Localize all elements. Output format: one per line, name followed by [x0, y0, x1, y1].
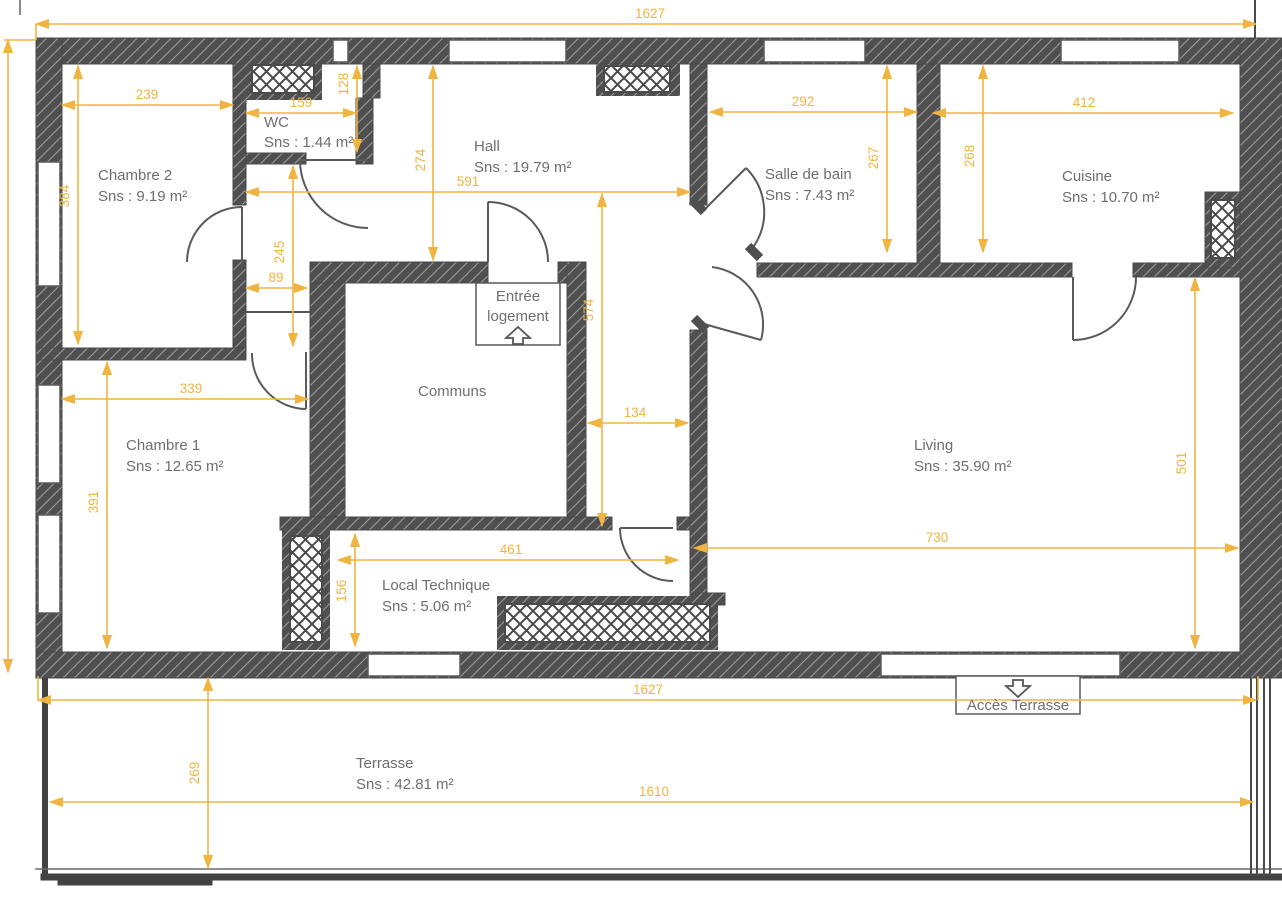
shaft-local-tech-duct: [290, 536, 322, 642]
door-salle-de-bain: [702, 168, 764, 246]
shaft-hall-duct: [604, 66, 670, 92]
window-top-3: [764, 40, 865, 62]
window-top-2: [449, 40, 566, 62]
dim-label-chambre1-height: 391: [86, 491, 101, 514]
door-jamb-3: [694, 318, 706, 330]
dim-label-terrace-depth: 269: [187, 762, 202, 785]
window-bottom-1: [368, 654, 460, 676]
floor-plan-canvas: 1627 239 159 128 274 591 574 292 267 268…: [0, 0, 1282, 900]
dim-label-top-total: 1627: [635, 6, 665, 21]
room-area-salle-de-bain: Sns : 7.43 m²: [765, 187, 854, 204]
room-label-chambre1: Chambre 1: [126, 437, 200, 454]
dim-label-corridor-width: 134: [624, 405, 647, 420]
door-jamb-2: [748, 246, 760, 258]
dim-label-hall-width: 591: [457, 174, 480, 189]
dim-label-local-height: 156: [334, 580, 349, 603]
entree-label-line2: logement: [487, 308, 550, 325]
dim-label-bottom-total: 1627: [633, 682, 663, 697]
wall-wc-east: [356, 98, 373, 164]
door-chambre2: [187, 207, 242, 262]
wall-corridor-east-lower: [690, 330, 707, 605]
wall-wc-south: [246, 153, 306, 164]
shafts: [244, 58, 1235, 650]
wall-living-north-west: [757, 263, 1072, 277]
dim-label-niche: 89: [268, 270, 283, 285]
door-local-technique: [620, 528, 673, 581]
door-cuisine: [1073, 277, 1136, 340]
room-label-salle-de-bain: Salle de bain: [765, 166, 852, 183]
dim-label-local-width: 461: [500, 542, 523, 557]
room-area-terrasse: Sns : 42.81 m²: [356, 776, 454, 793]
room-label-chambre2: Chambre 2: [98, 167, 172, 184]
dim-label-cuisine-height: 268: [962, 145, 977, 168]
wall-chambre-divider: [36, 348, 246, 360]
room-area-hall: Sns : 19.79 m²: [474, 159, 572, 176]
door-chambre1: [252, 352, 306, 409]
dim-label-cuisine-width: 412: [1073, 95, 1096, 110]
acces-terrasse-label: Accès Terrasse: [967, 697, 1069, 714]
dim-label-wc-width: 159: [290, 95, 313, 110]
room-label-terrasse: Terrasse: [356, 755, 414, 772]
floor-plan-page: 1627 239 159 128 274 591 574 292 267 268…: [0, 0, 1282, 900]
window-left-3: [38, 515, 60, 613]
dim-elbow-top-left: [4, 24, 36, 40]
shaft-cuisine-duct: [1211, 200, 1235, 258]
walls: [36, 38, 1282, 678]
dim-label-chambre2-width: 239: [136, 87, 159, 102]
dim-label-sdb-height: 267: [866, 147, 881, 170]
terrace-outline: [20, 0, 1282, 883]
room-label-cuisine: Cuisine: [1062, 168, 1112, 185]
room-area-cuisine: Sns : 10.70 m²: [1062, 189, 1160, 206]
dim-label-hall-height: 274: [413, 148, 428, 171]
room-label-local-technique: Local Technique: [382, 577, 490, 594]
dim-label-ch2-inner: 245: [272, 241, 287, 264]
room-label-hall: Hall: [474, 138, 500, 155]
dim-label-living-width: 730: [926, 530, 949, 545]
room-label-living: Living: [914, 437, 953, 454]
door-entree-logement: [488, 202, 548, 262]
room-area-chambre2: Sns : 9.19 m²: [98, 188, 187, 205]
dim-label-chambre2-height: 384: [57, 184, 72, 207]
shaft-wc-duct: [252, 65, 314, 93]
door-living: [704, 267, 763, 340]
window-bottom-2: [881, 654, 1120, 676]
dim-label-chambre1-width: 339: [180, 381, 203, 396]
wall-wc-north-stub: [363, 64, 380, 98]
wall-right: [1240, 38, 1282, 678]
dim-label-hall-corridor: 574: [581, 298, 596, 321]
window-top-4: [1061, 40, 1179, 62]
door-jambs: [692, 200, 760, 330]
dim-label-sdb-width: 292: [792, 94, 815, 109]
room-area-wc: Sns : 1.44 m²: [264, 134, 353, 151]
door-wc: [300, 160, 368, 228]
dim-label-terrace-width: 1610: [639, 784, 669, 799]
room-area-chambre1: Sns : 12.65 m²: [126, 458, 224, 475]
window-top-1: [333, 40, 348, 62]
window-left-2: [38, 385, 60, 483]
room-label-wc: WC: [264, 114, 289, 131]
shaft-bottom-duct: [505, 604, 710, 642]
wall-hall-south-west: [310, 262, 488, 283]
dim-label-living-height: 501: [1174, 452, 1189, 475]
wall-hall-east-upper: [690, 64, 707, 205]
room-area-local-technique: Sns : 5.06 m²: [382, 598, 471, 615]
room-area-living: Sns : 35.90 m²: [914, 458, 1012, 475]
wall-communs-west: [310, 283, 345, 517]
wall-chambre2-east-lower: [233, 260, 246, 348]
window-left-1: [38, 162, 60, 286]
wall-sdb-cuisine-divider: [917, 64, 940, 263]
dim-label-wc-height: 128: [336, 73, 351, 96]
room-label-communs: Communs: [418, 383, 486, 400]
entree-label-line1: Entrée: [496, 288, 540, 305]
